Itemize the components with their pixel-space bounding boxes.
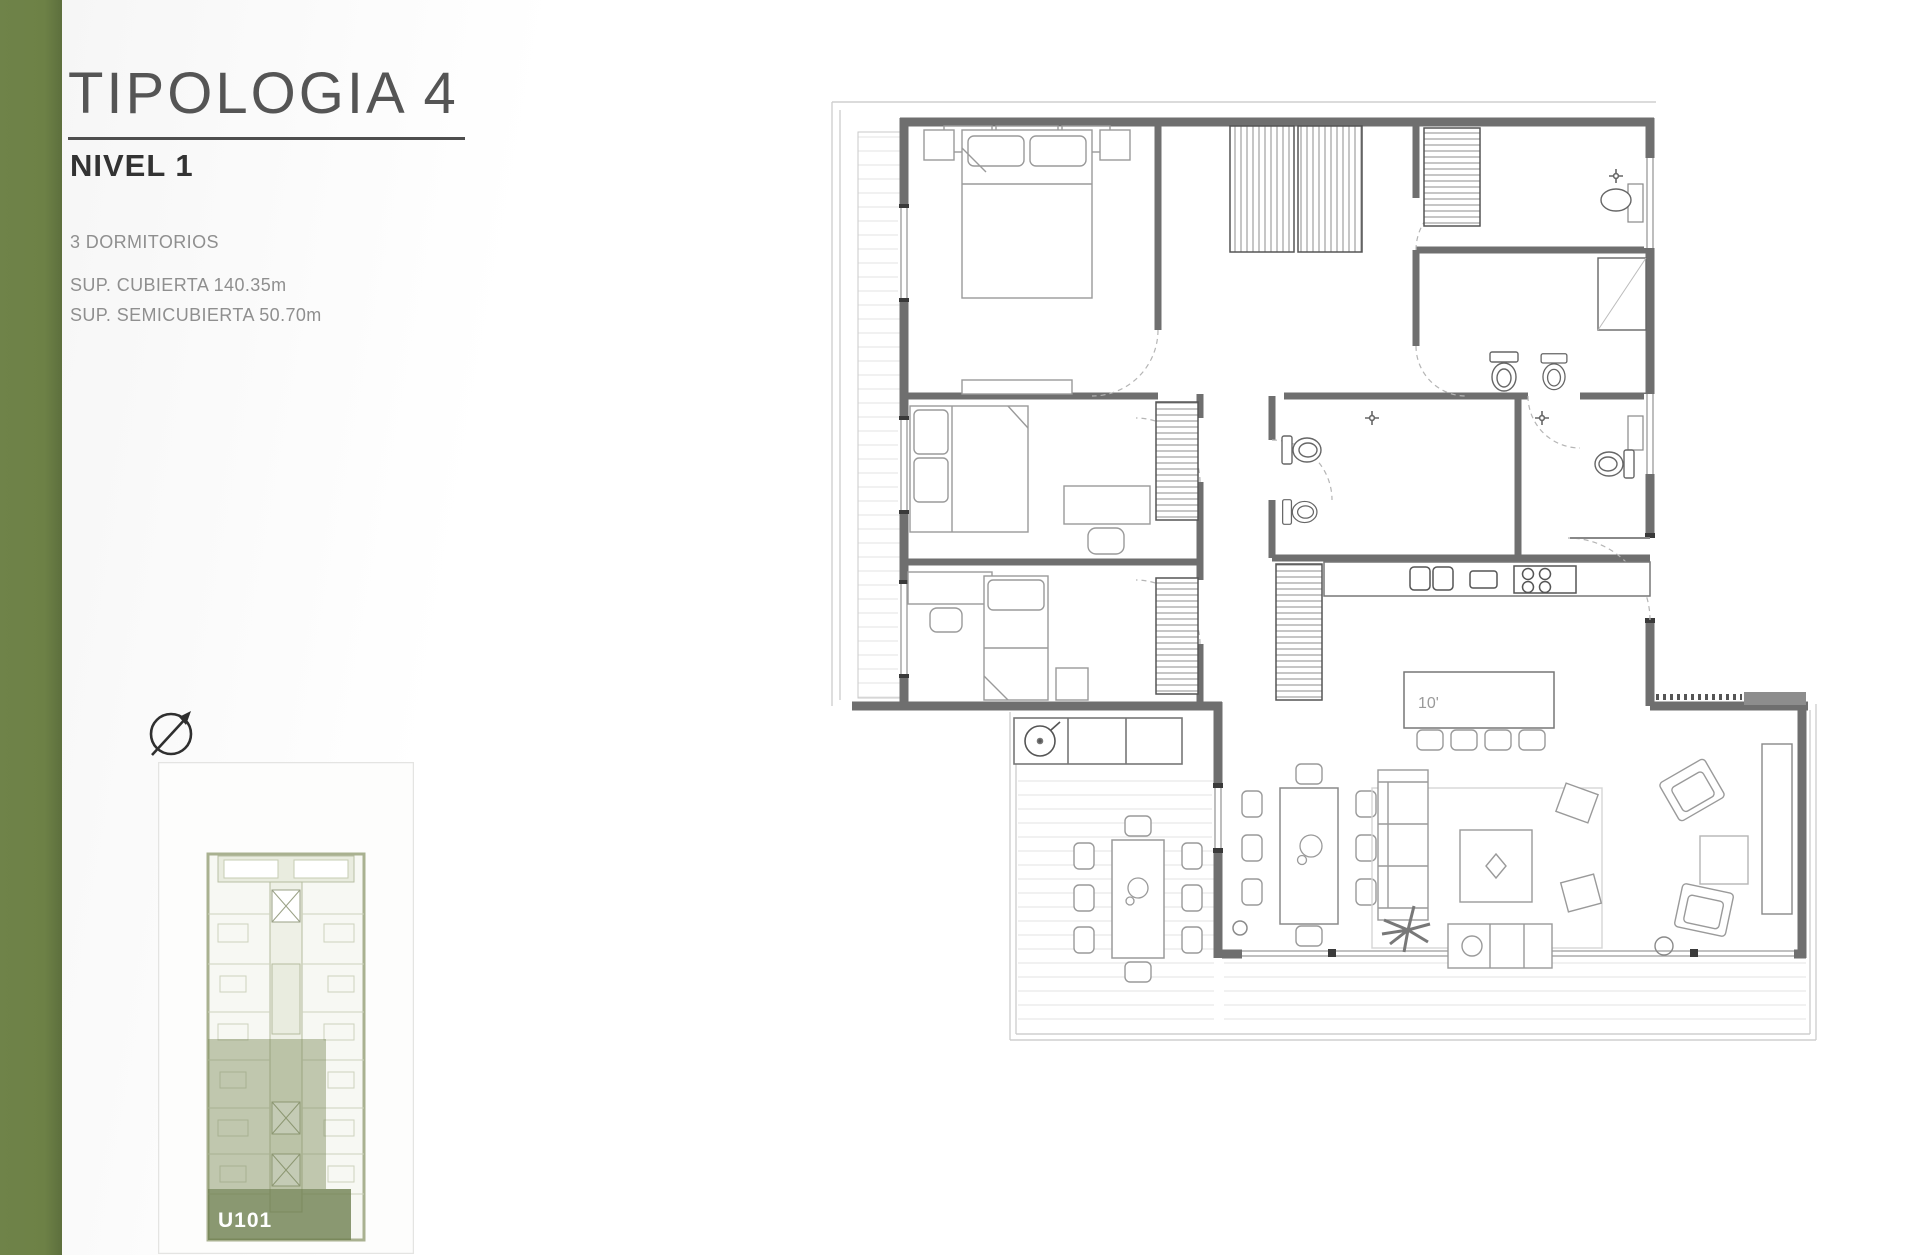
kitchen-island: 10' [1404,672,1554,750]
kitchen: 10' [1324,562,1650,750]
bedroom-2 [910,380,1150,554]
dining-table [1242,764,1376,946]
page-subtitle: NIVEL 1 [70,148,465,184]
detail-semi-covered-area: SUP. SEMICUBIERTA 50.70m [70,305,322,326]
lounge-armchair-1 [1658,758,1725,822]
floor-plan-island-label: 10' [1418,695,1439,712]
detail-covered-area: SUP. CUBIERTA 140.35m [70,275,322,296]
living-room [1372,744,1792,968]
wardrobes [1156,126,1480,700]
sofa [1378,770,1428,920]
key-plan-building: U101 [208,854,364,1240]
daybed [1448,924,1552,968]
key-plan: U101 [158,762,414,1254]
planter-bench [1762,744,1792,914]
bbq-counter [1014,718,1182,764]
terrace-drain [1233,921,1247,935]
floor-plan: 10' [812,88,1877,1073]
page-title: TIPOLOGIA 4 [68,60,465,140]
details-block: 3 DORMITORIOS SUP. CUBIERTA 140.35m SUP.… [70,232,322,326]
title-block: TIPOLOGIA 4 NIVEL 1 [68,60,465,184]
north-arrow-icon [136,696,208,768]
lounge-armchair-2 [1674,883,1734,937]
accent-bar [0,0,62,1255]
page: TIPOLOGIA 4 NIVEL 1 3 DORMITORIOS SUP. C… [0,0,1920,1255]
detail-bedrooms: 3 DORMITORIOS [70,232,322,253]
bedroom-3 [908,572,1088,700]
master-bedroom [924,126,1130,298]
key-plan-unit-label: U101 [218,1209,272,1232]
